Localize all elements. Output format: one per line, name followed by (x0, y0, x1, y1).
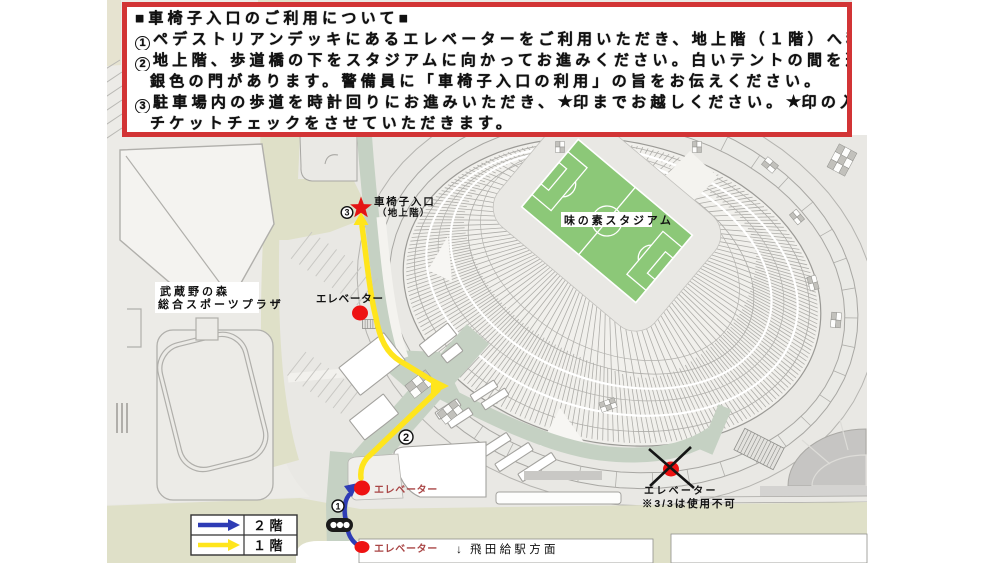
svg-text:2: 2 (403, 432, 409, 444)
svg-text:エレベーター: エレベーター (374, 484, 438, 496)
svg-text:エレベーター: エレベーター (316, 293, 384, 305)
svg-text:エレベーター: エレベーター (374, 543, 438, 555)
svg-text:総合スポーツプラザ: 総合スポーツプラザ (158, 297, 284, 311)
svg-text:エレベーター: エレベーター (644, 485, 718, 497)
svg-text:3: 3 (344, 208, 349, 218)
svg-text:味の素スタジアム: 味の素スタジアム (564, 213, 674, 227)
svg-text:↓: ↓ (456, 542, 462, 556)
svg-text:1: 1 (335, 501, 340, 511)
svg-text:飛田給駅方面: 飛田給駅方面 (470, 542, 559, 556)
svg-text:武蔵野の森: 武蔵野の森 (160, 284, 230, 298)
svg-text:車椅子入口: 車椅子入口 (374, 195, 436, 208)
svg-text:２階: ２階 (253, 518, 286, 533)
svg-text:※3/3は使用不可: ※3/3は使用不可 (642, 497, 737, 510)
svg-text:１階: １階 (253, 538, 286, 553)
svg-text:（地上階）: （地上階） (377, 207, 431, 219)
